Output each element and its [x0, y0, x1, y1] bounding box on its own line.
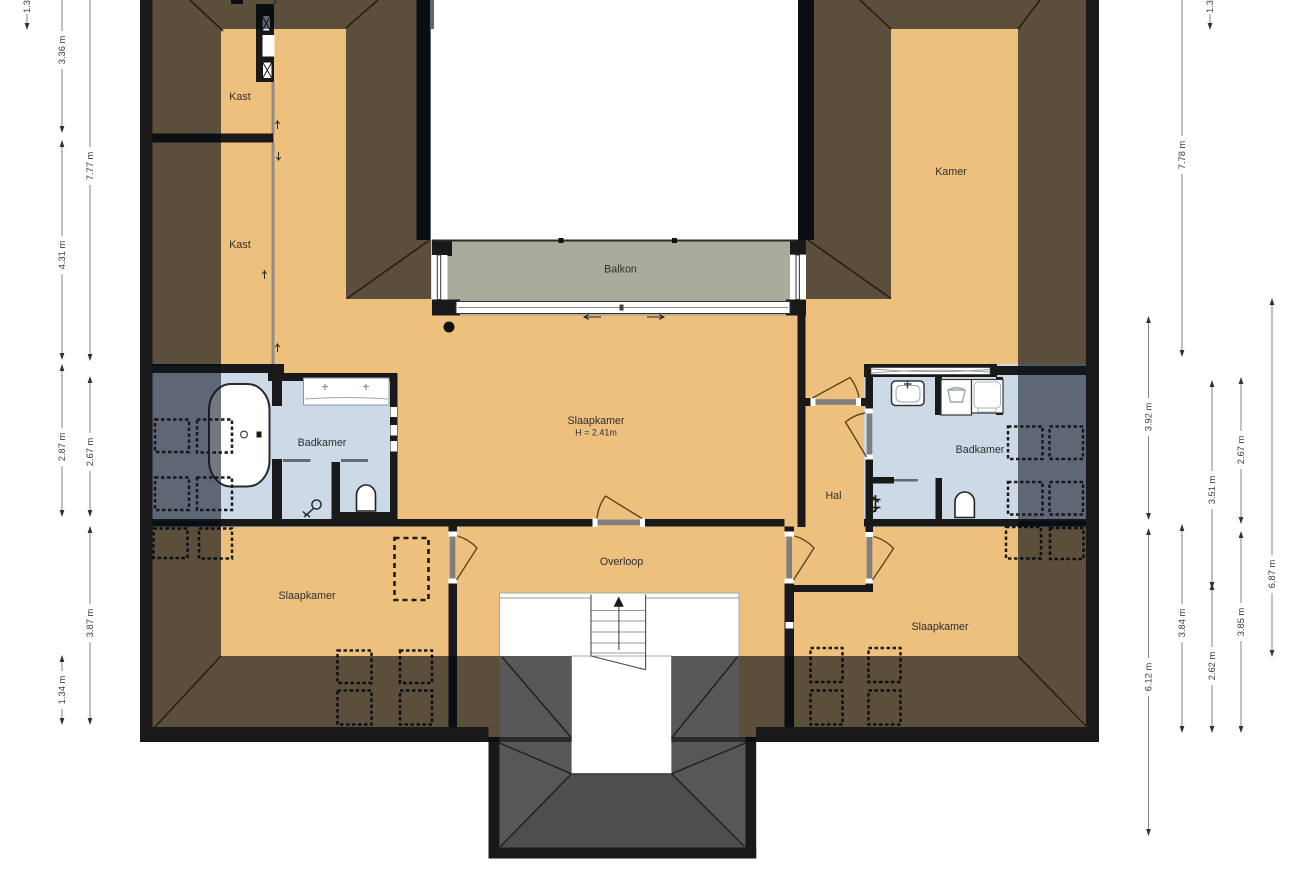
svg-text:1.3: 1.3 — [1205, 0, 1215, 13]
svg-text:Slaapkamer: Slaapkamer — [911, 621, 968, 633]
svg-text:2.62 m: 2.62 m — [1207, 652, 1217, 681]
svg-text:3.87 m: 3.87 m — [85, 609, 95, 638]
svg-text:Balkon: Balkon — [604, 264, 637, 276]
svg-text:Badkamer: Badkamer — [298, 437, 347, 449]
svg-text:1.34 m: 1.34 m — [57, 676, 67, 705]
svg-text:6.12 m: 6.12 m — [1144, 663, 1154, 692]
svg-text:7.77 m: 7.77 m — [85, 152, 95, 181]
svg-text:3.85 m: 3.85 m — [1236, 608, 1246, 637]
svg-text:Slaapkamer: Slaapkamer — [278, 590, 335, 602]
svg-text:2.67 m: 2.67 m — [1236, 436, 1246, 465]
svg-text:1.3: 1.3 — [22, 0, 32, 13]
svg-text:Slaapkamer: Slaapkamer — [567, 415, 624, 427]
svg-text:Kamer: Kamer — [935, 166, 967, 178]
svg-text:7.78 m: 7.78 m — [1177, 141, 1187, 170]
svg-text:Hal: Hal — [825, 490, 841, 502]
svg-text:3.36 m: 3.36 m — [57, 36, 67, 65]
svg-text:3.51 m: 3.51 m — [1207, 476, 1217, 505]
svg-text:Kast: Kast — [229, 239, 250, 251]
svg-text:Badkamer: Badkamer — [956, 444, 1005, 456]
svg-text:2.67 m: 2.67 m — [85, 438, 95, 467]
svg-text:Kast: Kast — [229, 91, 250, 103]
svg-text:4.31 m: 4.31 m — [57, 241, 67, 270]
svg-text:6.87 m: 6.87 m — [1267, 560, 1277, 589]
svg-text:2.87 m: 2.87 m — [57, 433, 67, 462]
svg-text:Overloop: Overloop — [600, 556, 643, 568]
svg-text:3.84 m: 3.84 m — [1177, 609, 1187, 638]
svg-text:3.92 m: 3.92 m — [1144, 403, 1154, 432]
svg-text:H = 2.41m: H = 2.41m — [575, 428, 617, 438]
